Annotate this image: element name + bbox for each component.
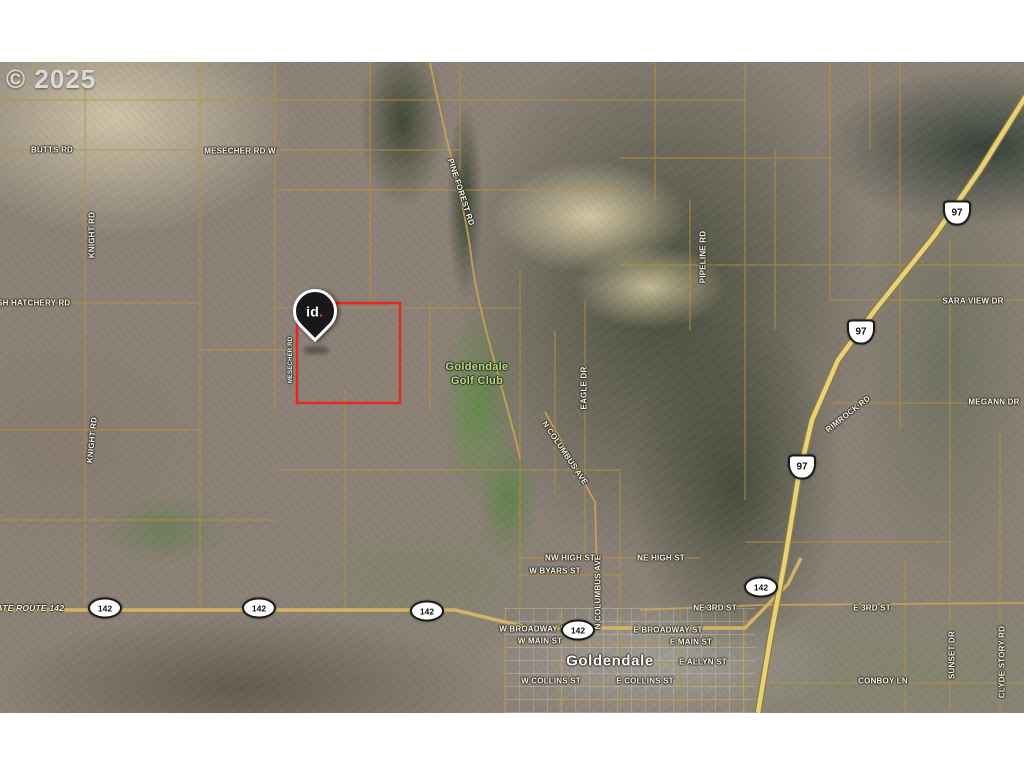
copyright-watermark: © 2025 xyxy=(6,64,96,95)
map-label-fish-hatchery-rd: FISH HATCHERY RD xyxy=(0,299,70,308)
bottom-margin xyxy=(0,713,1024,768)
map-label-w-main-st: W MAIN ST xyxy=(518,637,562,646)
map-label-ne-high-st: NE HIGH ST xyxy=(637,554,685,563)
map-label-sunset-dr: SUNSET DR xyxy=(948,631,957,679)
map-label-golf-club: Golf Club xyxy=(451,375,503,387)
map-label-e-main-st: E MAIN ST xyxy=(670,638,712,647)
map-label-state-route-142: STATE ROUTE 142 xyxy=(0,603,64,613)
map-label-e-broadway-st: E BROADWAY ST xyxy=(633,626,702,635)
map-label-pipeline-rd: PIPELINE RD xyxy=(699,231,708,283)
map-label-butts-rd: BUTTS RD xyxy=(31,146,73,155)
route-142-road xyxy=(0,558,801,628)
sr-142-route-shield: 142 xyxy=(88,598,122,619)
pin-shadow xyxy=(303,346,329,354)
map-label-ne-3rd-st: NE 3RD ST xyxy=(693,604,737,613)
map-label-mesecher-rd-w: MESECHER RD W xyxy=(204,147,276,156)
map-label-nw-high-st: NW HIGH ST xyxy=(545,554,595,563)
map-label-megann-dr: MEGANN DR xyxy=(968,398,1019,407)
map-label-goldendale: Goldendale xyxy=(566,653,654,670)
sr-142-route-shield: 142 xyxy=(744,577,778,598)
map-label-knight-rd: KNIGHT RD xyxy=(88,212,97,258)
parcel-lines xyxy=(0,62,1024,713)
map-label-e-allyn-st: E ALLYN ST xyxy=(679,658,727,667)
minor-roads xyxy=(430,62,1024,610)
satellite-map[interactable]: BUTTS RDMESECHER RD WKNIGHT RDFISH HATCH… xyxy=(0,62,1024,713)
map-label-clyde-story-rd: CLYDE STORY RD xyxy=(998,626,1007,698)
sr-142-route-shield: 142 xyxy=(561,620,595,641)
map-label-eagle-dr: EAGLE DR xyxy=(580,367,589,410)
map-label-n-columbus-ave: N COLUMBUS AVE xyxy=(594,555,603,630)
map-line-overlay xyxy=(0,62,1024,713)
top-margin xyxy=(0,0,1024,62)
sr-142-route-shield: 142 xyxy=(410,601,444,622)
map-label-mesecher-rd: MESECHER RD xyxy=(288,337,294,384)
map-label-goldendale: Goldendale xyxy=(446,361,509,373)
map-label-e-3rd-st: E 3RD ST xyxy=(853,604,891,613)
sr-142-route-shield: 142 xyxy=(242,598,276,619)
map-label-sara-view-dr: SARA VIEW DR xyxy=(942,297,1003,306)
pin-brand-dot: . xyxy=(319,303,323,319)
pin-brand-label: id. xyxy=(306,304,323,318)
map-label-e-collins-st: E COLLINS ST xyxy=(616,677,674,686)
map-label-w-byars-st: W BYARS ST xyxy=(529,567,581,576)
map-label-w-collins-st: W COLLINS ST xyxy=(521,677,581,686)
map-label-conboy-ln: CONBOY LN xyxy=(858,677,908,686)
